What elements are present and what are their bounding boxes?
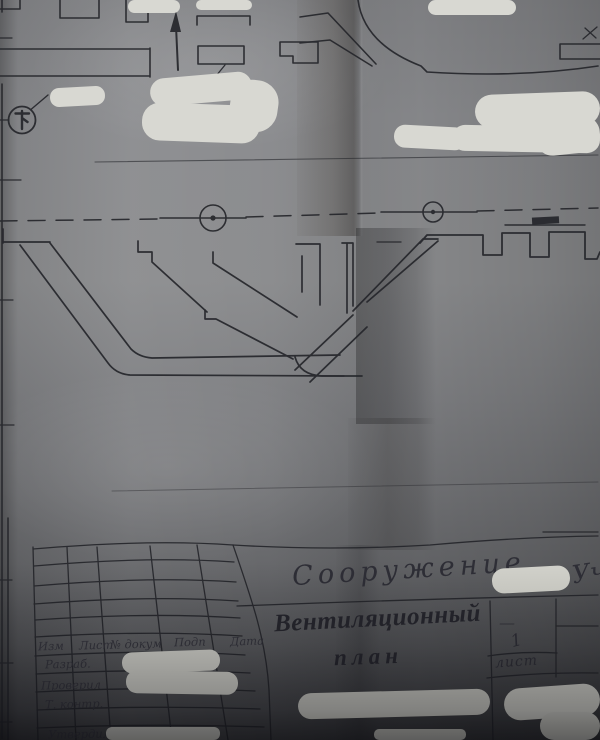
structure-caption-suffix: Уч xyxy=(570,556,600,590)
revision-header-podp: Подп xyxy=(174,635,206,650)
survey-point-icon xyxy=(160,205,246,231)
redaction-mark xyxy=(196,0,252,10)
redaction-mark xyxy=(540,712,600,740)
signature-row-tkontr: Т. контр. xyxy=(45,696,104,711)
signature-row-proveril: Проверил xyxy=(41,677,101,692)
signature-row-utverdil: Утвердил xyxy=(48,726,110,740)
redaction-mark xyxy=(128,0,180,13)
signature-row-razrab: Разраб. xyxy=(45,657,91,672)
redaction-mark xyxy=(491,565,570,594)
drawing-title-line2: план xyxy=(334,643,404,671)
drawing-frame xyxy=(0,0,21,740)
redaction-mark xyxy=(50,86,106,108)
revision-header-list: Лист xyxy=(79,638,114,653)
crenellated-wall xyxy=(420,216,600,259)
revision-header-izm: Изм xyxy=(38,639,64,654)
redaction-mark xyxy=(298,688,491,719)
axis-centerline xyxy=(0,208,598,221)
empty-value-dash: — xyxy=(499,613,515,632)
duct-runs xyxy=(3,229,438,382)
redaction-mark xyxy=(126,670,238,695)
sheet-label: лист xyxy=(494,653,538,672)
equipment-tag-icon xyxy=(9,95,49,134)
redaction-mark xyxy=(534,115,600,157)
revision-header-data: Дата xyxy=(230,634,264,649)
survey-point-icon xyxy=(381,202,477,222)
blueprint-photo: Сооружение Уч Вентиляционный план — 1 ли… xyxy=(0,0,600,740)
redaction-mark xyxy=(428,0,516,15)
redaction-mark xyxy=(106,727,220,740)
redaction-mark xyxy=(393,124,466,151)
redaction-mark xyxy=(374,729,466,740)
thin-reference-line xyxy=(95,155,598,162)
north-arrow-icon xyxy=(170,11,181,70)
revision-header-docnum: № докум xyxy=(110,636,162,651)
